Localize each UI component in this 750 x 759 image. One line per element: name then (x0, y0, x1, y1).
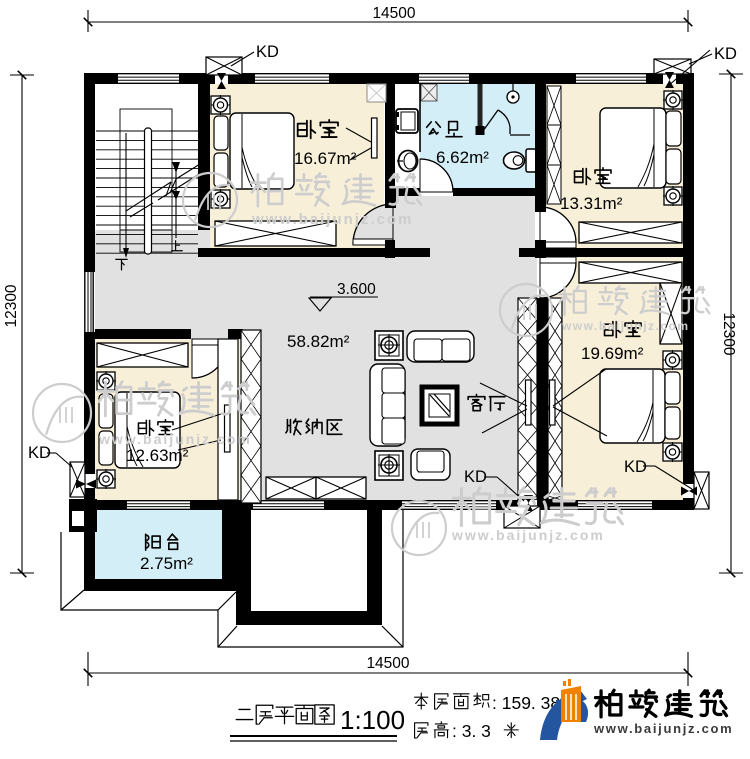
svg-text:13.31m²: 13.31m² (560, 194, 623, 213)
svg-text:: 3. 3: : 3. 3 (452, 721, 491, 741)
svg-text:16.67m²: 16.67m² (294, 149, 357, 168)
svg-text:www.baijunjz.com: www.baijunjz.com (561, 319, 690, 333)
svg-text:14500: 14500 (366, 655, 409, 672)
svg-text:www.baijunjz.com: www.baijunjz.com (251, 211, 413, 228)
svg-text:www.baijunjz.com: www.baijunjz.com (593, 721, 733, 736)
svg-text:: 159. 38: : 159. 38 (492, 693, 560, 713)
svg-text:KD: KD (256, 43, 279, 61)
svg-text:3.600: 3.600 (337, 281, 376, 298)
svg-text:12300: 12300 (3, 284, 20, 327)
svg-text:58.82m²: 58.82m² (287, 332, 350, 351)
svg-text:KD: KD (624, 458, 647, 476)
svg-text:12300: 12300 (720, 312, 737, 355)
svg-text:www.baijunjz.com: www.baijunjz.com (451, 527, 605, 543)
svg-text:KD: KD (714, 45, 737, 63)
svg-text:2.75m²: 2.75m² (140, 554, 193, 573)
svg-text:12.63m²: 12.63m² (126, 446, 189, 465)
svg-text:19.69m²: 19.69m² (581, 344, 644, 363)
svg-text:6.62m²: 6.62m² (436, 148, 489, 167)
svg-text:14500: 14500 (372, 5, 415, 22)
svg-text:1:100: 1:100 (340, 705, 405, 735)
svg-text:www.baijunjz.com: www.baijunjz.com (98, 431, 252, 447)
svg-text:KD: KD (464, 468, 487, 486)
